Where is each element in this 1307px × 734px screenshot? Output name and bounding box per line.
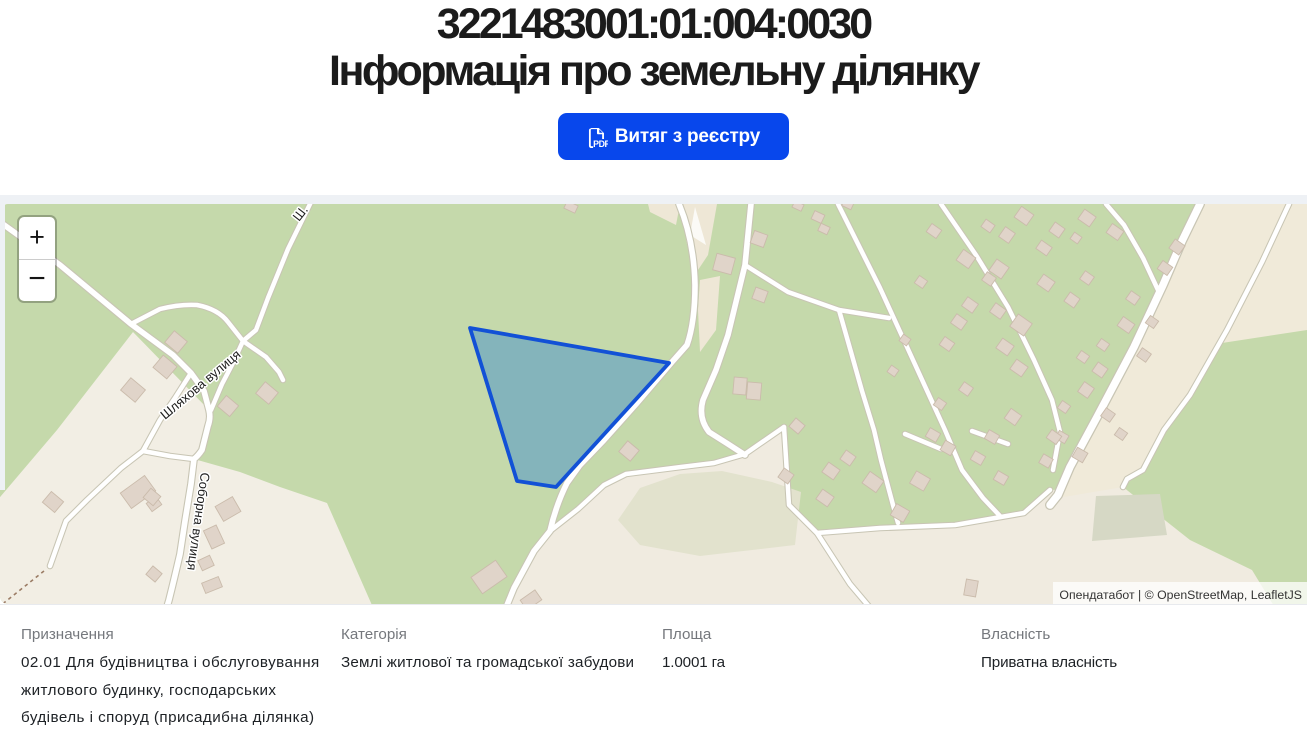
svg-text:Опендатабот | © OpenStreetMap,: Опендатабот | © OpenStreetMap, LeafletJS	[1059, 588, 1302, 602]
svg-text:PDF: PDF	[593, 138, 608, 147]
